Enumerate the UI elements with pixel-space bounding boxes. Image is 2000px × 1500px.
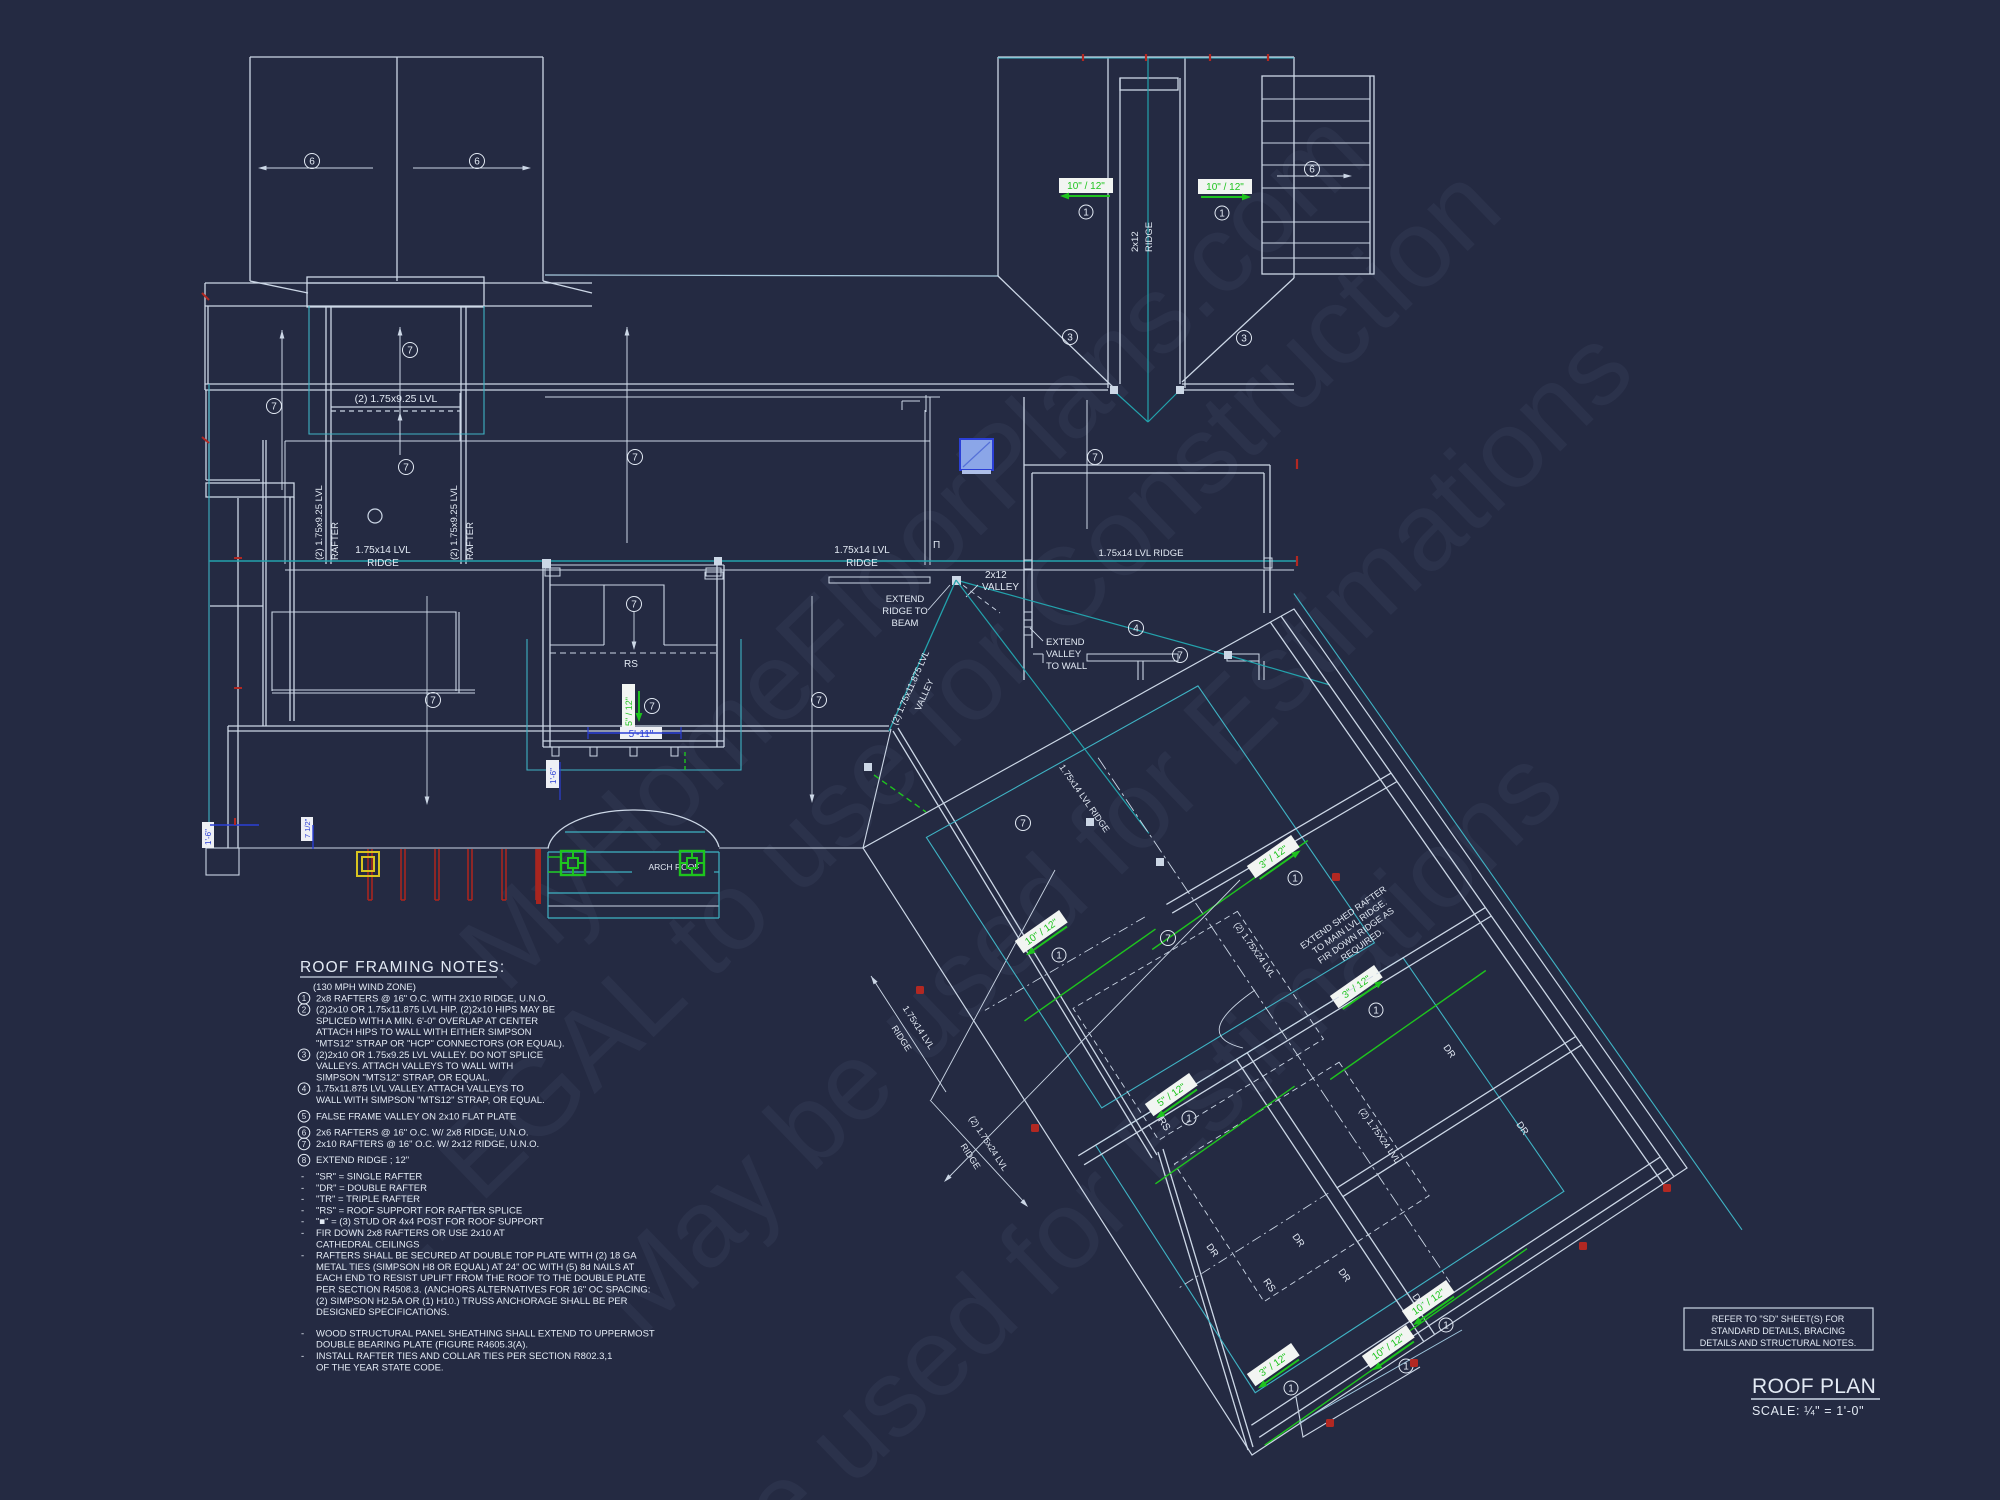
svg-text:7: 7 bbox=[407, 346, 413, 357]
svg-text:(2) 1.75x9.25 LVL: (2) 1.75x9.25 LVL bbox=[355, 393, 438, 405]
svg-text:EXTEND: EXTEND bbox=[886, 594, 925, 605]
svg-text:7: 7 bbox=[1165, 934, 1171, 945]
svg-text:8: 8 bbox=[302, 1156, 307, 1165]
svg-text:7: 7 bbox=[271, 402, 277, 413]
svg-text:EXTEND: EXTEND bbox=[1046, 637, 1085, 648]
svg-text:-: - bbox=[301, 1172, 304, 1183]
svg-text:2x10 RAFTERS @ 16" O.C. W/ 2x1: 2x10 RAFTERS @ 16" O.C. W/ 2x12 RIDGE, U… bbox=[316, 1139, 539, 1150]
svg-text:2x8 RAFTERS @ 16" O.C. WITH 2X: 2x8 RAFTERS @ 16" O.C. WITH 2X10 RIDGE, … bbox=[316, 993, 548, 1004]
svg-text:INSTALL RAFTER TIES AND COLLAR: INSTALL RAFTER TIES AND COLLAR TIES PER … bbox=[316, 1351, 612, 1362]
svg-text:RIDGE: RIDGE bbox=[1144, 222, 1155, 252]
svg-text:4: 4 bbox=[1133, 624, 1139, 635]
svg-text:1: 1 bbox=[1219, 209, 1225, 220]
svg-text:(2)2x10 OR 1.75x9.25 LVL VALLE: (2)2x10 OR 1.75x9.25 LVL VALLEY. DO NOT … bbox=[316, 1050, 543, 1061]
svg-text:2x12: 2x12 bbox=[1130, 231, 1141, 252]
svg-text:7 1/2": 7 1/2" bbox=[303, 818, 312, 838]
svg-text:-: - bbox=[301, 1328, 304, 1339]
svg-text:(2) 1.75x9.25 LVL: (2) 1.75x9.25 LVL bbox=[449, 485, 460, 560]
svg-text:RIDGE: RIDGE bbox=[367, 558, 399, 569]
svg-text:-: - bbox=[301, 1194, 304, 1205]
svg-text:RAFTER: RAFTER bbox=[330, 522, 341, 560]
svg-text:7: 7 bbox=[430, 696, 436, 707]
svg-text:1: 1 bbox=[1443, 1321, 1449, 1332]
svg-text:RIDGE TO: RIDGE TO bbox=[882, 606, 928, 617]
svg-text:3: 3 bbox=[1241, 334, 1247, 345]
svg-text:1: 1 bbox=[1083, 208, 1089, 219]
svg-text:1'-6": 1'-6" bbox=[204, 829, 213, 845]
svg-text:WOOD STRUCTURAL PANEL SHEATHIN: WOOD STRUCTURAL PANEL SHEATHING SHALL EX… bbox=[316, 1328, 655, 1339]
svg-text:7: 7 bbox=[631, 600, 637, 611]
svg-text:RAFTERS SHALL BE SECURED AT DO: RAFTERS SHALL BE SECURED AT DOUBLE TOP P… bbox=[316, 1251, 637, 1262]
svg-text:DOUBLE BEARING PLATE (FIGURE R: DOUBLE BEARING PLATE (FIGURE R4605.3(A). bbox=[316, 1340, 528, 1351]
svg-text:WALL WITH SIMPSON "MTS12" STRA: WALL WITH SIMPSON "MTS12" STRAP, OR EQUA… bbox=[316, 1095, 545, 1106]
svg-text:-: - bbox=[301, 1183, 304, 1194]
svg-text:RAFTER: RAFTER bbox=[465, 522, 476, 560]
svg-text:FIR DOWN 2x8 RAFTERS OR USE 2x: FIR DOWN 2x8 RAFTERS OR USE 2x10 AT bbox=[316, 1228, 505, 1239]
svg-text:6: 6 bbox=[1309, 165, 1315, 176]
svg-text:1'-6": 1'-6" bbox=[549, 768, 558, 784]
svg-text:ROOF FRAMING NOTES:: ROOF FRAMING NOTES: bbox=[300, 959, 505, 976]
svg-text:(130 MPH WIND ZONE): (130 MPH WIND ZONE) bbox=[313, 982, 416, 993]
svg-text:3: 3 bbox=[302, 1051, 307, 1060]
svg-text:-: - bbox=[301, 1217, 304, 1228]
svg-text:SIMPSON "MTS12" STRAP, OR EQUA: SIMPSON "MTS12" STRAP, OR EQUAL. bbox=[316, 1072, 490, 1083]
svg-text:5: 5 bbox=[302, 1112, 307, 1121]
svg-text:1: 1 bbox=[1056, 951, 1062, 962]
svg-text:(2) SIMPSON H2.5A OR (1) H10.): (2) SIMPSON H2.5A OR (1) H10.) TRUSS ANC… bbox=[316, 1296, 628, 1307]
svg-text:1.75x14 LVL: 1.75x14 LVL bbox=[834, 545, 890, 556]
svg-text:"■" = (3) STUD OR 4x4 POST: "■" = (3) STUD OR 4x4 POST FOR ROOF SUPP… bbox=[316, 1217, 544, 1228]
svg-text:(2)2x10 OR 1.75x11.875 LVL HIP: (2)2x10 OR 1.75x11.875 LVL HIP. (2)2x10 … bbox=[316, 1005, 555, 1016]
svg-text:STANDARD DETAILS, BRACING: STANDARD DETAILS, BRACING bbox=[1711, 1326, 1845, 1336]
svg-text:ATTACH HIPS TO WALL WITH EITHE: ATTACH HIPS TO WALL WITH EITHER SIMPSON bbox=[316, 1027, 532, 1038]
svg-text:OF THE YEAR STATE CODE.: OF THE YEAR STATE CODE. bbox=[316, 1362, 444, 1373]
svg-text:2x6 RAFTERS @ 16" O.C. W/ 2x8: 2x6 RAFTERS @ 16" O.C. W/ 2x8 RIDGE, U.N… bbox=[316, 1128, 529, 1139]
svg-text:CATHEDRAL CEILINGS: CATHEDRAL CEILINGS bbox=[316, 1239, 419, 1250]
svg-text:DETAILS AND STRUCTURAL NOTES.: DETAILS AND STRUCTURAL NOTES. bbox=[1700, 1338, 1857, 1348]
svg-text:-: - bbox=[301, 1351, 304, 1362]
svg-text:"MTS12" STRAP OR "HCP" CONNECT: "MTS12" STRAP OR "HCP" CONNECTORS (OR EQ… bbox=[316, 1039, 565, 1050]
svg-text:"DR" = DOUBLE RAFTER: "DR" = DOUBLE RAFTER bbox=[316, 1183, 427, 1194]
svg-text:10" / 12": 10" / 12" bbox=[1067, 181, 1105, 192]
svg-text:BEAM: BEAM bbox=[892, 618, 919, 629]
svg-text:2x12: 2x12 bbox=[985, 570, 1007, 581]
svg-text:7: 7 bbox=[302, 1140, 307, 1149]
svg-text:7: 7 bbox=[649, 702, 655, 713]
svg-text:(2) 1.75x9.25 LVL: (2) 1.75x9.25 LVL bbox=[314, 485, 325, 560]
svg-text:PER SECTION R4508.3. (ANCHORS: PER SECTION R4508.3. (ANCHORS ALTERNATIV… bbox=[316, 1285, 650, 1296]
svg-text:7: 7 bbox=[816, 696, 822, 707]
svg-text:4: 4 bbox=[302, 1085, 307, 1094]
svg-text:5'-11": 5'-11" bbox=[629, 729, 654, 740]
svg-text:1: 1 bbox=[1373, 1006, 1379, 1017]
svg-text:"TR" = TRIPLE RAFTER: "TR" = TRIPLE RAFTER bbox=[316, 1194, 420, 1205]
svg-text:EACH END TO RESIST UPLIFT FROM: EACH END TO RESIST UPLIFT FROM THE ROOF … bbox=[316, 1273, 645, 1284]
svg-text:1: 1 bbox=[1288, 1384, 1294, 1395]
svg-text:7: 7 bbox=[1092, 453, 1098, 464]
svg-text:RIDGE: RIDGE bbox=[846, 558, 878, 569]
svg-text:1.75x14 LVL: 1.75x14 LVL bbox=[355, 545, 411, 556]
svg-text:7: 7 bbox=[1020, 819, 1026, 830]
svg-text:VALLEY: VALLEY bbox=[1046, 649, 1082, 660]
svg-text:SPLICED WITH A MIN. 6'-0" OVER: SPLICED WITH A MIN. 6'-0" OVERLAP AT CEN… bbox=[316, 1016, 538, 1027]
svg-text:Π: Π bbox=[933, 540, 940, 551]
svg-text:2: 2 bbox=[302, 1006, 307, 1015]
svg-text:5" / 12": 5" / 12" bbox=[624, 697, 634, 726]
svg-text:1: 1 bbox=[1292, 874, 1298, 885]
svg-text:-: - bbox=[301, 1251, 304, 1262]
svg-text:3: 3 bbox=[1067, 333, 1073, 344]
svg-text:VALLEY: VALLEY bbox=[982, 582, 1019, 593]
svg-text:FALSE FRAME VALLEY ON 2x10 FLA: FALSE FRAME VALLEY ON 2x10 FLAT PLATE bbox=[316, 1111, 516, 1122]
svg-text:1.75x14 LVL RIDGE: 1.75x14 LVL RIDGE bbox=[1098, 548, 1183, 559]
svg-text:DESIGNED SPECIFICATIONS.: DESIGNED SPECIFICATIONS. bbox=[316, 1307, 449, 1318]
svg-text:6: 6 bbox=[302, 1129, 307, 1138]
svg-text:ROOF PLAN: ROOF PLAN bbox=[1752, 1375, 1876, 1398]
svg-text:1: 1 bbox=[302, 994, 307, 1003]
svg-text:-: - bbox=[301, 1205, 304, 1216]
svg-text:10" / 12": 10" / 12" bbox=[1206, 182, 1244, 193]
svg-text:EXTEND RIDGE ; 12": EXTEND RIDGE ; 12" bbox=[316, 1155, 409, 1166]
svg-text:"SR" = SINGLE RAFTER: "SR" = SINGLE RAFTER bbox=[316, 1172, 422, 1183]
svg-text:7: 7 bbox=[632, 453, 638, 464]
svg-text:REFER TO "SD" SHEET(S) FOR: REFER TO "SD" SHEET(S) FOR bbox=[1712, 1314, 1845, 1324]
svg-text:6: 6 bbox=[474, 157, 480, 168]
svg-text:1.75x11.875 LVL VALLEY. ATTAC: 1.75x11.875 LVL VALLEY. ATTACH VALLEYS T… bbox=[316, 1084, 524, 1095]
svg-text:METAL TIES (SIMPSON H8 OR EQUA: METAL TIES (SIMPSON H8 OR EQUAL) AT 24" … bbox=[316, 1262, 635, 1273]
svg-text:VALLEYS. ATTACH VALLEYS TO WA: VALLEYS. ATTACH VALLEYS TO WALL WITH bbox=[316, 1061, 513, 1072]
svg-text:"RS" = ROOF SUPPORT FOR RAFT: "RS" = ROOF SUPPORT FOR RAFTER SPLICE bbox=[316, 1205, 522, 1216]
svg-text:SCALE: ¼" = 1'-0": SCALE: ¼" = 1'-0" bbox=[1752, 1404, 1864, 1418]
svg-text:RS: RS bbox=[624, 659, 638, 670]
svg-text:-: - bbox=[301, 1228, 304, 1239]
svg-text:6: 6 bbox=[309, 157, 315, 168]
svg-text:1: 1 bbox=[1186, 1114, 1192, 1125]
svg-text:7: 7 bbox=[403, 463, 409, 474]
svg-text:TO WALL: TO WALL bbox=[1046, 661, 1087, 672]
svg-text:7: 7 bbox=[1177, 651, 1183, 662]
svg-text:1: 1 bbox=[1403, 1362, 1409, 1373]
